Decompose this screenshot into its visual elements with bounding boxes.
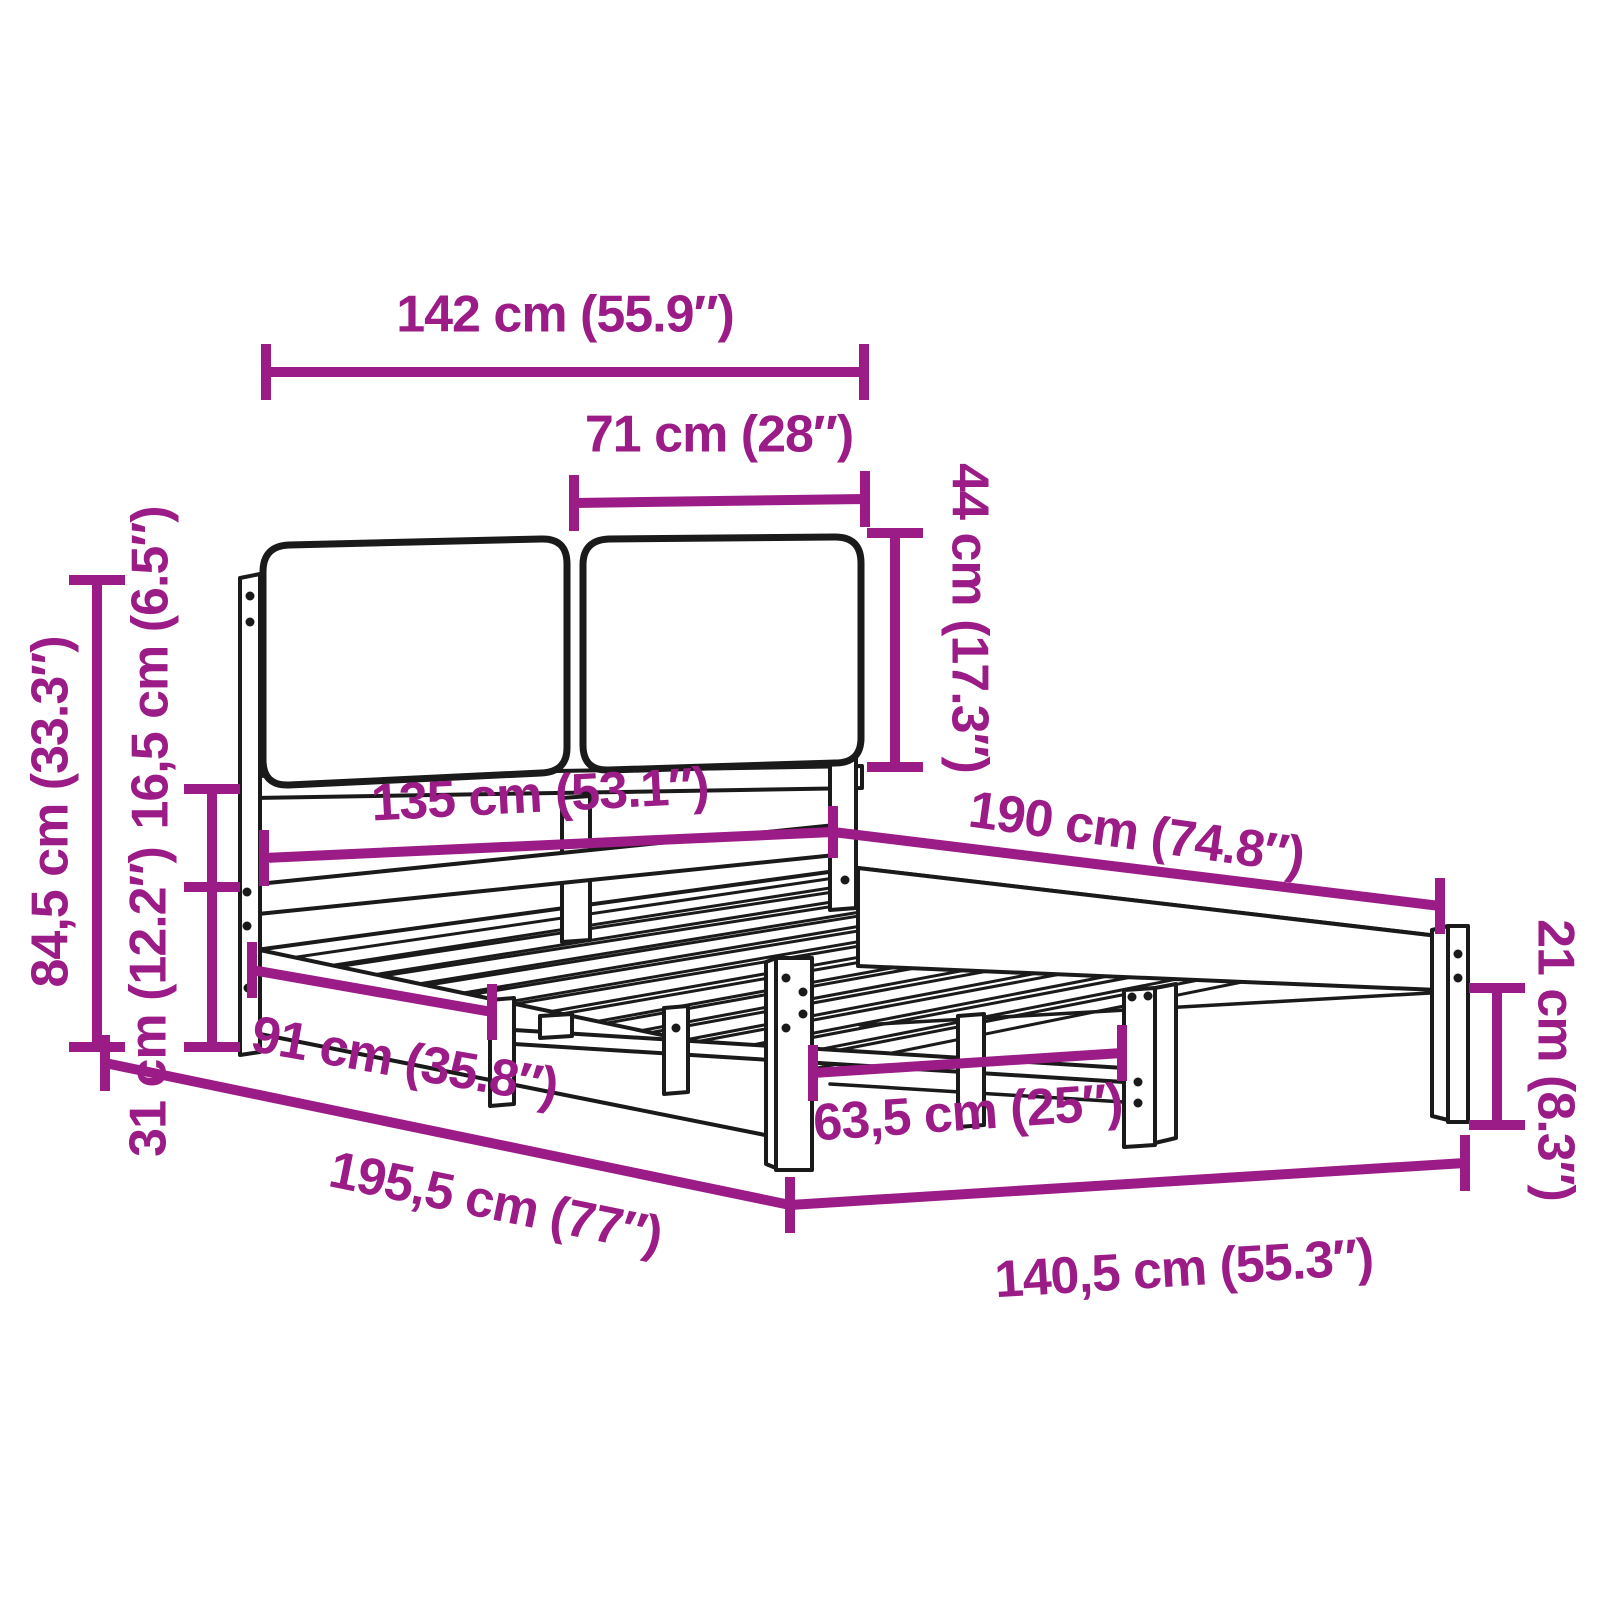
screw-icon — [1128, 993, 1137, 1002]
dim-cushion-bottom-to-rail: 16,5 cm (6.5″) — [122, 506, 240, 887]
dim-label: 71 cm (28″) — [585, 406, 853, 464]
dim-label: 84,5 cm (33.3″) — [22, 636, 80, 987]
screw-icon — [1134, 1078, 1143, 1087]
screw-icon — [841, 876, 850, 885]
dim-label: 195,5 cm (77″) — [324, 1141, 666, 1265]
dim-label: 140,5 cm (55.3″) — [993, 1228, 1375, 1309]
screw-icon — [1134, 1099, 1143, 1108]
screw-icon — [799, 988, 808, 997]
dim-label: 31 cm (12.2″) — [120, 847, 178, 1157]
screw-icon — [243, 888, 252, 897]
dim-rail-to-floor-height: 31 cm (12.2″) — [120, 847, 240, 1157]
screw-icon — [782, 974, 791, 983]
dim-label: 21 cm (8.3″) — [1526, 919, 1584, 1201]
dim-cushion-width: 71 cm (28″) — [574, 406, 865, 531]
dim-total-width: 140,5 cm (55.3″) — [790, 1135, 1465, 1309]
dim-label: 44 cm (17.3″) — [940, 463, 998, 773]
center-leg-4 — [1124, 984, 1176, 1147]
bed-frame-dimension-diagram: 142 cm (55.9″) 71 cm (28″) 44 cm (17.3″)… — [0, 0, 1600, 1600]
dimension-diagram-canvas: 142 cm (55.9″) 71 cm (28″) 44 cm (17.3″)… — [0, 0, 1600, 1600]
dim-cushion-height: 44 cm (17.3″) — [867, 463, 998, 773]
screw-icon — [799, 1010, 808, 1019]
headboard-cushion-left — [263, 539, 567, 785]
screw-icon — [243, 922, 252, 931]
dim-label: 16,5 cm (6.5″) — [122, 506, 180, 829]
screw-icon — [1454, 950, 1463, 959]
foot-leg-left — [766, 958, 812, 1170]
screw-icon — [1454, 974, 1463, 983]
center-leg-2 — [664, 1006, 688, 1094]
dim-headboard-height: 84,5 cm (33.3″) — [22, 580, 125, 1047]
dim-leg-height: 21 cm (8.3″) — [1469, 919, 1584, 1201]
screw-icon — [672, 1024, 681, 1033]
screw-icon — [246, 592, 255, 601]
foot-leg-right — [1432, 926, 1468, 1122]
dim-headboard-total-width: 142 cm (55.9″) — [266, 286, 864, 400]
headboard-cushion-right — [583, 537, 861, 770]
screw-icon — [782, 1024, 791, 1033]
dim-label: 142 cm (55.9″) — [396, 286, 734, 344]
support-bracket — [540, 1014, 572, 1038]
screw-icon — [1144, 992, 1153, 1001]
screw-icon — [246, 618, 255, 627]
